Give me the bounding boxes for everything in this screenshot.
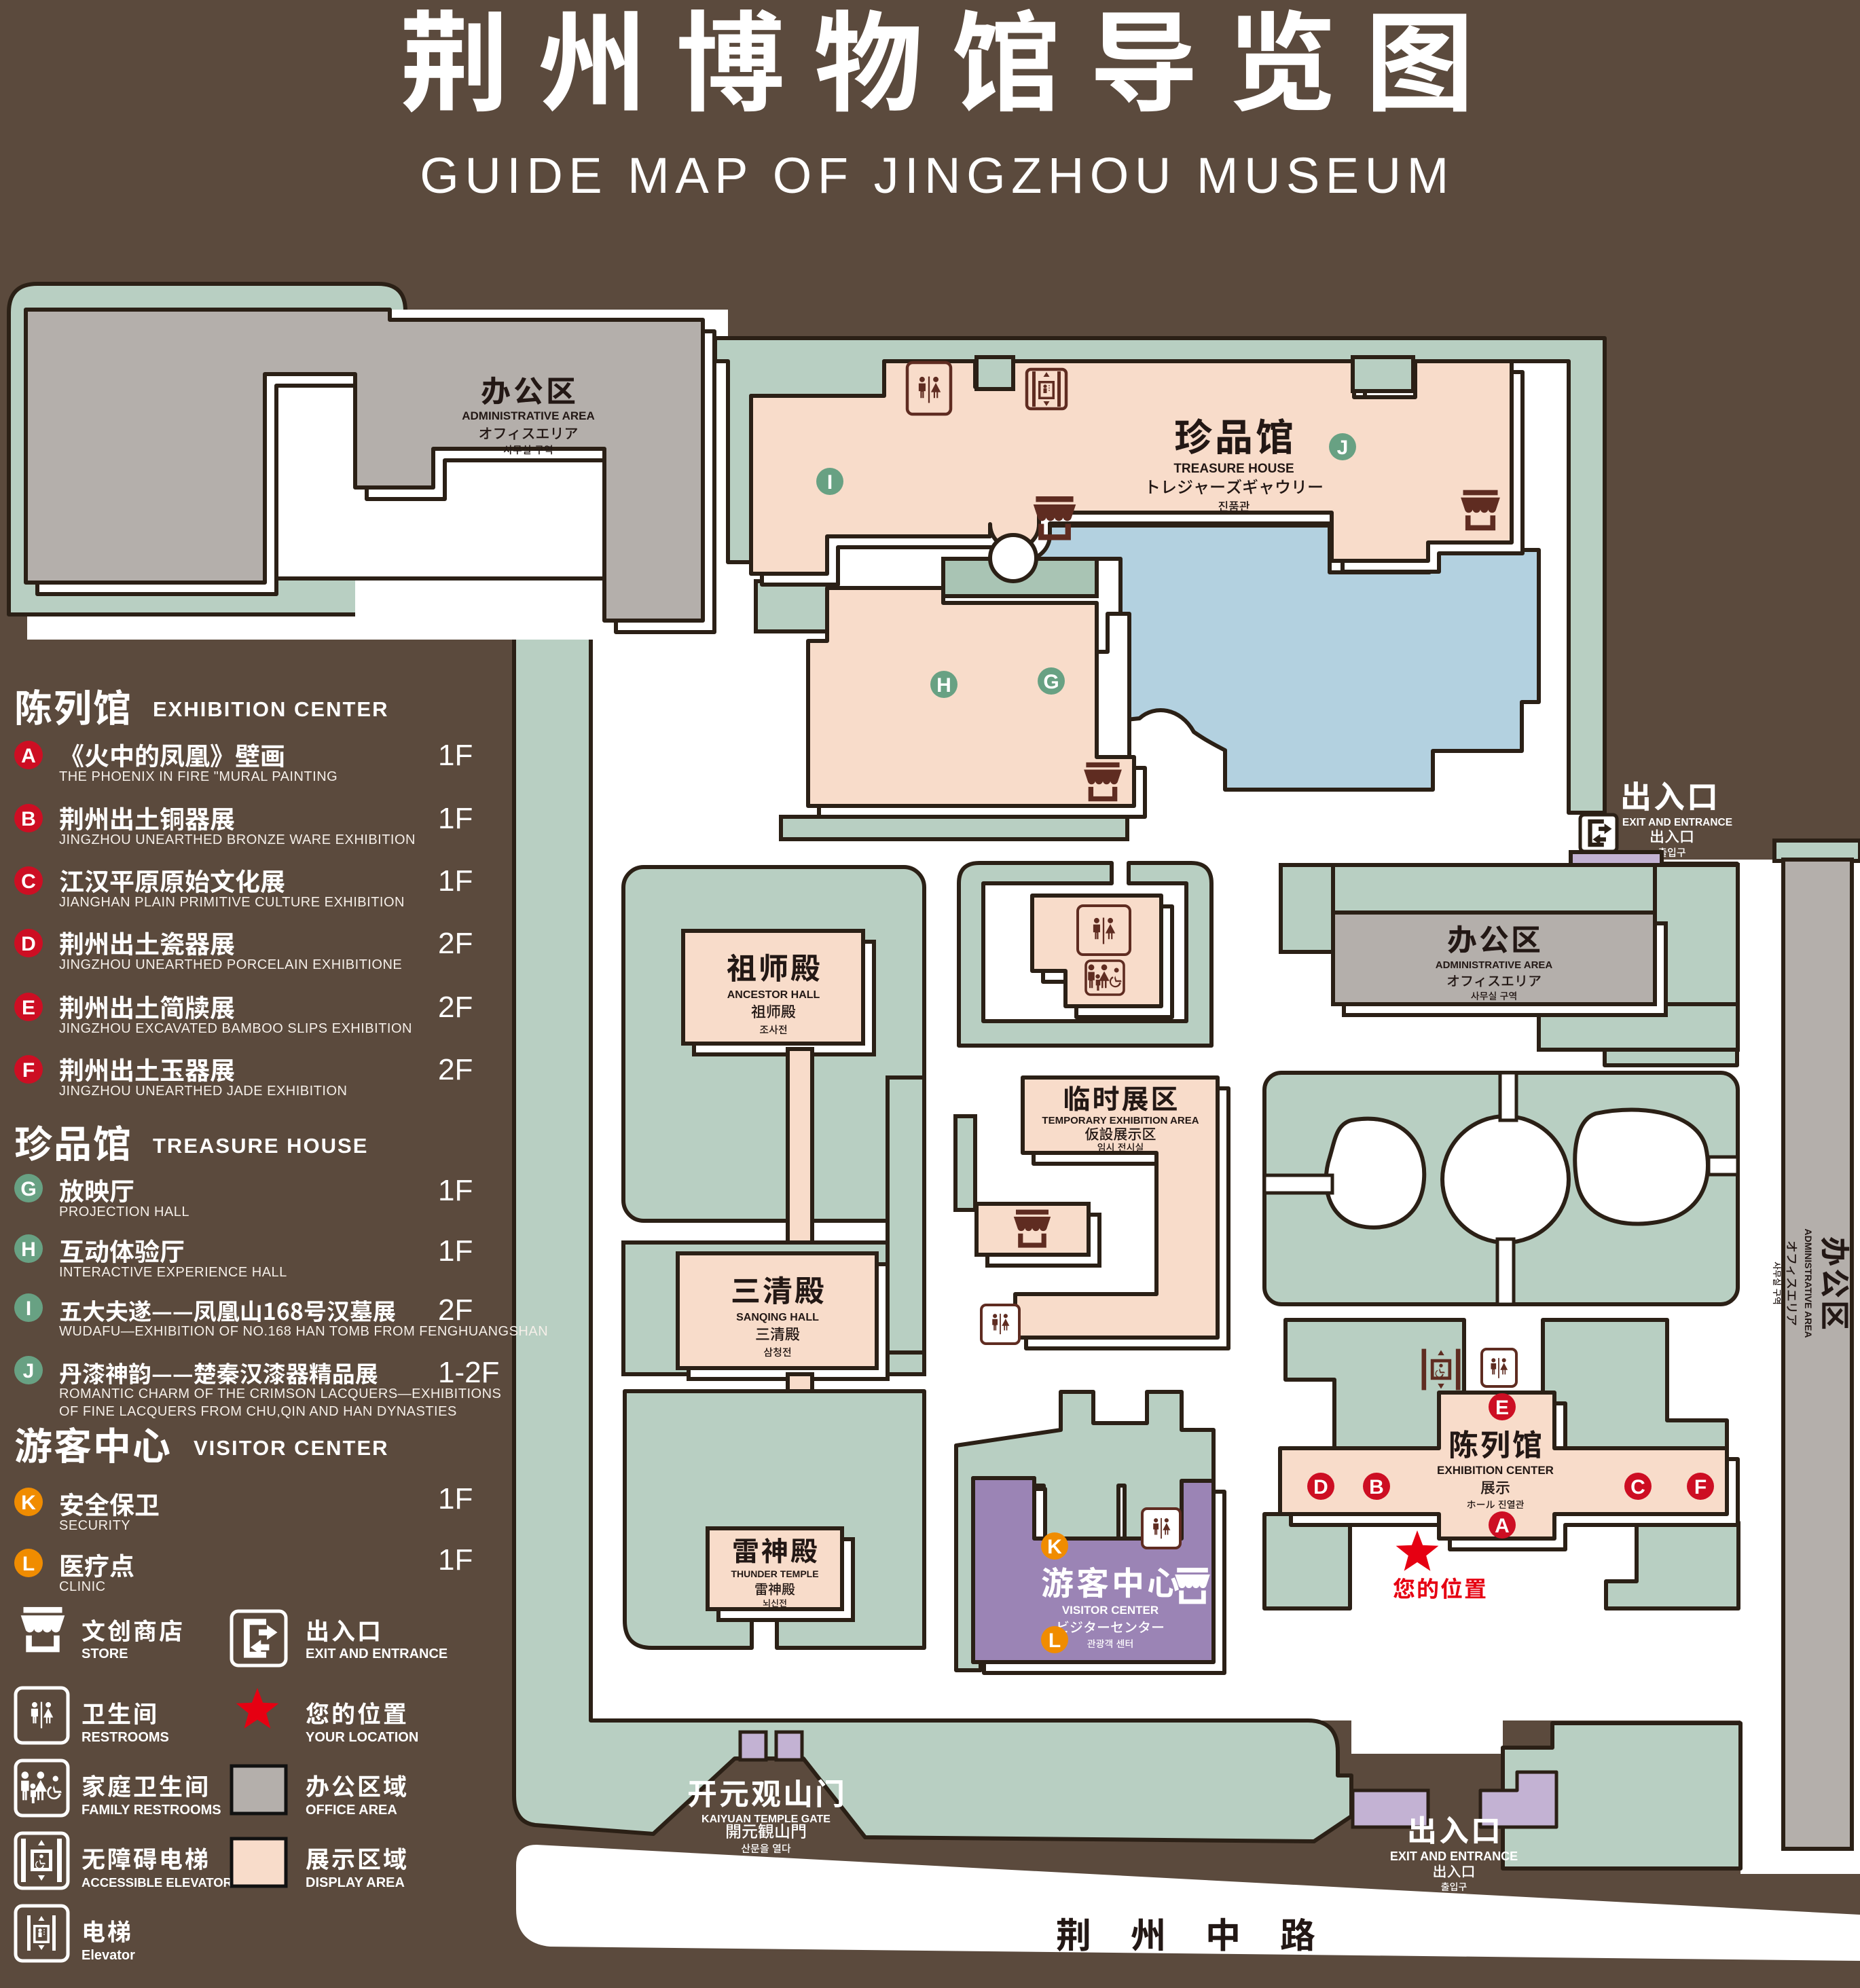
svg-text:2F: 2F (438, 991, 473, 1024)
svg-text:JIANGHAN PLAIN PRIMITIVE CULTU: JIANGHAN PLAIN PRIMITIVE CULTURE EXHIBIT… (59, 895, 405, 910)
svg-text:1F: 1F (438, 739, 473, 772)
svg-text:1F: 1F (438, 1234, 473, 1268)
svg-text:EXIT AND ENTRANCE: EXIT AND ENTRANCE (1390, 1849, 1518, 1863)
svg-text:2F: 2F (438, 1293, 473, 1327)
svg-text:1F: 1F (438, 1543, 473, 1577)
svg-text:JINGZHOU UNEARTHED PORCELAIN E: JINGZHOU UNEARTHED PORCELAIN EXHIBITIONE (59, 957, 402, 972)
svg-text:J: J (1337, 437, 1349, 459)
svg-text:B: B (1369, 1476, 1384, 1498)
svg-text:JINGZHOU UNEARTHED BRONZE WARE: JINGZHOU UNEARTHED BRONZE WARE EXHIBITIO… (59, 832, 416, 847)
svg-text:EXHIBITION CENTER: EXHIBITION CENTER (153, 697, 388, 721)
svg-text:D: D (21, 933, 36, 955)
svg-text:OF FINE LACQUERS FROM CHU,QIN: OF FINE LACQUERS FROM CHU,QIN AND HAN DY… (59, 1404, 457, 1419)
svg-text:SECURITY: SECURITY (59, 1518, 130, 1533)
svg-text:Elevator: Elevator (81, 1948, 135, 1963)
svg-text:PROJECTION HALL: PROJECTION HALL (59, 1204, 189, 1219)
svg-text:C: C (1630, 1476, 1645, 1498)
svg-text:H: H (21, 1238, 36, 1261)
svg-text:2F: 2F (438, 927, 473, 960)
svg-text:JINGZHOU UNEARTHED JADE EXHIBI: JINGZHOU UNEARTHED JADE EXHIBITION (59, 1084, 347, 1099)
svg-text:CLINIC: CLINIC (59, 1579, 106, 1594)
svg-text:TEMPORARY EXHIBITION AREA: TEMPORARY EXHIBITION AREA (1042, 1115, 1199, 1126)
svg-text:D: D (1313, 1476, 1328, 1498)
svg-text:ANCESTOR HALL: ANCESTOR HALL (727, 989, 820, 1001)
svg-text:THE PHOENIX IN FIRE "MURAL PAI: THE PHOENIX IN FIRE "MURAL PAINTING (59, 769, 338, 784)
svg-text:KAIYUAN TEMPLE GATE: KAIYUAN TEMPLE GATE (701, 1814, 831, 1825)
svg-text:E: E (22, 997, 35, 1019)
svg-text:1-2F: 1-2F (438, 1356, 499, 1389)
svg-text:ACCESSIBLE ELEVATOR: ACCESSIBLE ELEVATOR (81, 1875, 232, 1890)
svg-text:F: F (22, 1059, 35, 1082)
svg-text:JINGZHOU EXCAVATED BAMBOO SLIP: JINGZHOU EXCAVATED BAMBOO SLIPS EXHIBITI… (59, 1021, 412, 1036)
svg-text:THUNDER TEMPLE: THUNDER TEMPLE (731, 1568, 818, 1579)
svg-text:1F: 1F (438, 1174, 473, 1207)
svg-text:F: F (1694, 1476, 1707, 1498)
svg-text:G: G (1043, 671, 1059, 693)
svg-text:VISITOR CENTER: VISITOR CENTER (1062, 1604, 1159, 1617)
svg-text:EXIT AND ENTRANCE: EXIT AND ENTRANCE (1622, 817, 1732, 828)
svg-text:B: B (21, 808, 36, 830)
svg-text:EXHIBITION CENTER: EXHIBITION CENTER (1437, 1464, 1554, 1477)
svg-text:STORE: STORE (81, 1646, 128, 1661)
svg-text:L: L (22, 1553, 35, 1575)
svg-text:WUDAFU—EXHIBITION OF NO.168 HA: WUDAFU—EXHIBITION OF NO.168 HAN TOMB FRO… (59, 1324, 548, 1339)
svg-text:OFFICE AREA: OFFICE AREA (306, 1803, 397, 1818)
svg-text:INTERACTIVE EXPERIENCE HALL: INTERACTIVE EXPERIENCE HALL (59, 1265, 287, 1280)
svg-text:YOUR LOCATION: YOUR LOCATION (306, 1730, 418, 1745)
svg-text:ADMINISTRATIVE AREA: ADMINISTRATIVE AREA (462, 409, 595, 422)
svg-text:K: K (21, 1492, 36, 1514)
svg-text:1F: 1F (438, 802, 473, 835)
svg-text:RESTROOMS: RESTROOMS (81, 1730, 169, 1745)
svg-text:L: L (1048, 1630, 1061, 1652)
svg-text:1F: 1F (438, 864, 473, 898)
svg-text:2F: 2F (438, 1053, 473, 1086)
svg-text:I: I (827, 471, 833, 494)
svg-text:TREASURE HOUSE: TREASURE HOUSE (1173, 462, 1294, 476)
svg-text:A: A (1495, 1515, 1510, 1537)
svg-text:EXIT AND ENTRANCE: EXIT AND ENTRANCE (306, 1646, 448, 1661)
svg-text:GUIDE MAP OF JINGZHOU MUSEUM: GUIDE MAP OF JINGZHOU MUSEUM (420, 147, 1454, 204)
svg-text:FAMILY RESTROOMS: FAMILY RESTROOMS (81, 1803, 221, 1818)
svg-text:A: A (21, 745, 36, 767)
svg-text:ADMINISTRATIVE AREA: ADMINISTRATIVE AREA (1803, 1229, 1814, 1338)
svg-text:1F: 1F (438, 1482, 473, 1515)
svg-text:H: H (936, 674, 951, 697)
svg-text:C: C (21, 870, 36, 893)
svg-text:TREASURE HOUSE: TREASURE HOUSE (153, 1134, 368, 1158)
svg-text:G: G (20, 1178, 36, 1200)
svg-text:ROMANTIC CHARM OF THE CRIMSON: ROMANTIC CHARM OF THE CRIMSON LACQUERS—E… (59, 1386, 501, 1401)
svg-text:K: K (1047, 1536, 1062, 1558)
svg-text:DISPLAY AREA: DISPLAY AREA (306, 1875, 405, 1890)
svg-text:SANQING HALL: SANQING HALL (736, 1312, 819, 1323)
svg-text:J: J (23, 1360, 35, 1382)
svg-text:VISITOR CENTER: VISITOR CENTER (194, 1436, 389, 1460)
svg-text:I: I (26, 1297, 31, 1320)
svg-text:E: E (1495, 1397, 1509, 1419)
svg-text:ADMINISTRATIVE AREA: ADMINISTRATIVE AREA (1436, 959, 1553, 971)
